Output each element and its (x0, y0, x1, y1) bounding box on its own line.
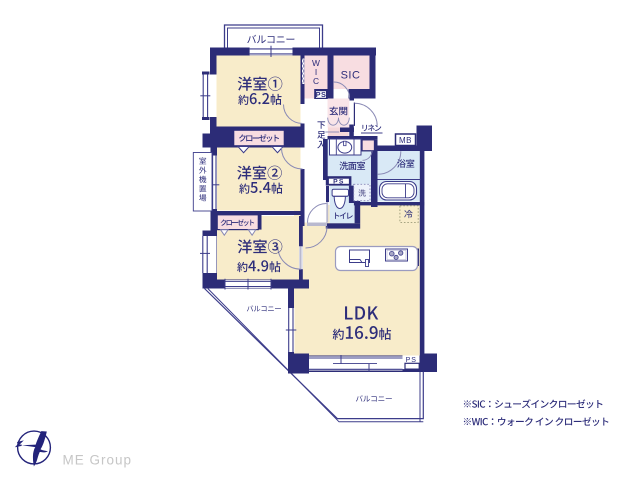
svg-text:MB: MB (399, 136, 412, 145)
svg-text:ME Group: ME Group (63, 453, 133, 468)
svg-text:C: C (313, 76, 319, 86)
svg-text:PS: PS (333, 179, 344, 186)
svg-text:PS: PS (316, 90, 327, 99)
svg-text:SIC: SIC (341, 70, 361, 82)
